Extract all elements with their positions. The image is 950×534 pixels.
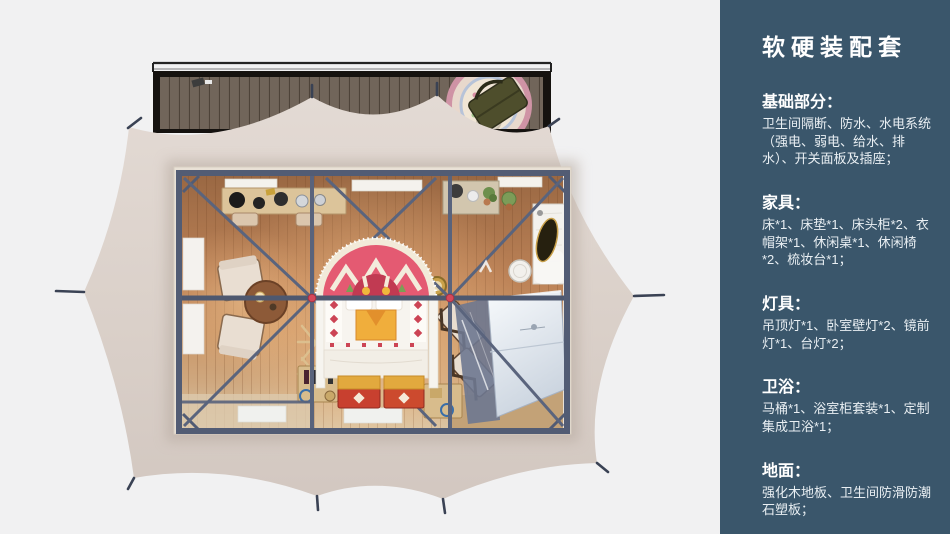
stake-left (56, 291, 84, 292)
side-table (245, 281, 287, 323)
section-body: 马桶*1、浴室柜套装*1、定制集成卫浴*1； (762, 400, 936, 435)
bowl (468, 191, 479, 202)
section-heading: 地面： (762, 457, 936, 481)
bed-skirt-right (429, 296, 438, 388)
window-shade-2 (183, 304, 204, 354)
duvet (324, 350, 428, 378)
section-heading: 基础部分： (762, 88, 936, 112)
side-box (424, 384, 462, 418)
section-basics: 基础部分： 卫生间隔断、防水、水电系统（强电、弱电、给水、排水）、开关面板及插座… (762, 88, 936, 168)
section-heading: 家具： (762, 189, 936, 213)
ceiling-vent-3 (498, 177, 542, 187)
hat-1 (229, 192, 245, 208)
section-body: 吊顶灯*1、卧室壁灯*2、镜前灯*1、台灯*2； (762, 317, 936, 352)
desk-chair-2 (296, 213, 322, 226)
section-body: 卫生间隔断、防水、水电系统（强电、弱电、给水、排水）、开关面板及插座； (762, 115, 936, 168)
chest-1 (338, 376, 380, 408)
panel-title: 软硬装配套 (762, 28, 936, 62)
section-furniture: 家具： 床*1、床垫*1、床头柜*2、衣帽架*1、休闲桌*1、休闲椅*2、梳妆台… (762, 189, 936, 269)
vanity-tray (537, 210, 543, 216)
frame-joint-left (308, 294, 316, 302)
section-bathroom: 卫浴： 马桶*1、浴室柜套装*1、定制集成卫浴*1； (762, 373, 936, 435)
section-body: 床*1、床垫*1、床头柜*2、衣帽架*1、休闲桌*1、休闲椅*2、梳妆台*1； (762, 216, 936, 269)
section-flooring: 地面： 强化木地板、卫生间防滑防潮石塑板； (762, 457, 936, 519)
hat-2 (253, 197, 265, 209)
section-heading: 卫浴： (762, 373, 936, 397)
dish (296, 195, 308, 207)
desk-chair-1 (232, 213, 258, 226)
window-shade-1 (183, 238, 204, 290)
bed-skirt-left (316, 296, 325, 388)
slide: 软硬装配套 基础部分： 卫生间隔断、防水、水电系统（强电、弱电、给水、排水）、开… (0, 0, 950, 534)
stake-bottom-1 (317, 496, 318, 510)
vanity-stool (509, 260, 531, 282)
faucet (531, 324, 537, 330)
stake-right (634, 295, 664, 296)
floor-mat-1 (238, 406, 286, 422)
section-body: 强化木地板、卫生间防滑防潮石塑板； (762, 484, 936, 519)
floorplan (0, 0, 720, 534)
floor-mat-2 (344, 408, 402, 423)
chest-2 (384, 376, 424, 408)
section-lighting: 灯具： 吊顶灯*1、卧室壁灯*2、镜前灯*1、台灯*2； (762, 290, 936, 352)
section-heading: 灯具： (762, 290, 936, 314)
info-panel: 软硬装配套 基础部分： 卫生间隔断、防水、水电系统（强电、弱电、给水、排水）、开… (720, 0, 950, 534)
frame-joint-right (446, 294, 454, 302)
coffee-grinder (274, 192, 288, 206)
ceiling-vent-2 (352, 180, 422, 191)
clock (315, 195, 326, 206)
